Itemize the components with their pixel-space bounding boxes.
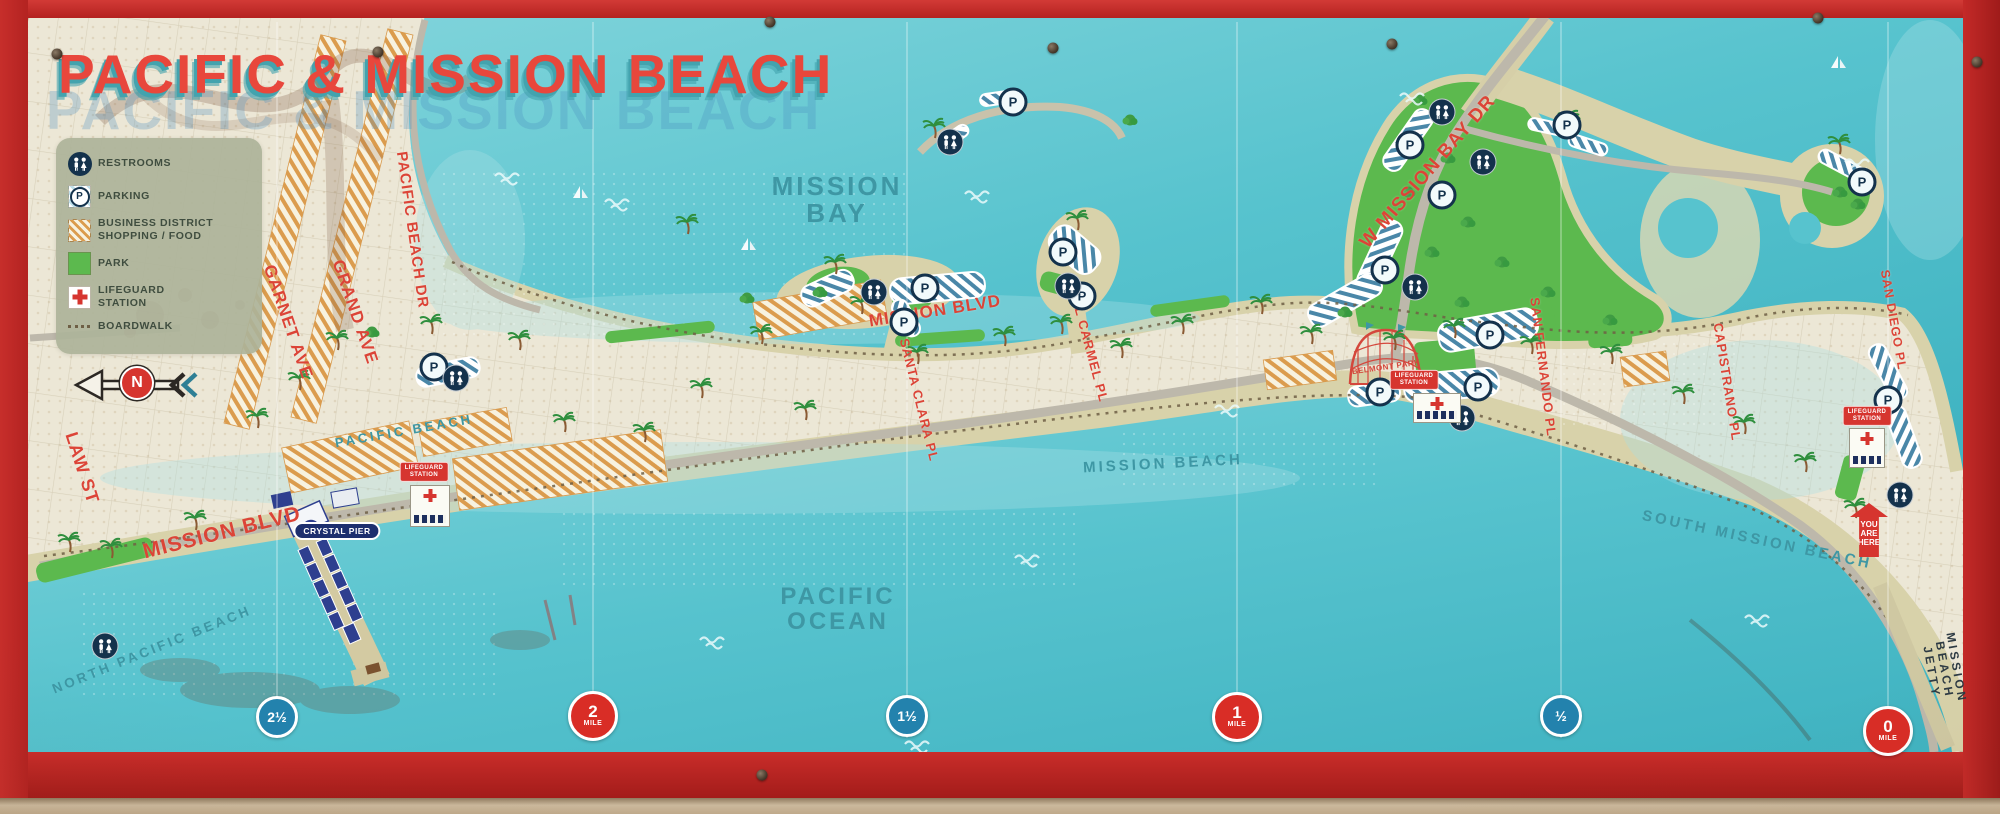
restrooms-icon [1429,99,1456,126]
parking-icon: P [911,274,940,303]
mile-marker: 2½ [256,696,298,738]
bolt-icon [1972,57,1983,68]
boardwalk-icon [68,325,98,328]
legend-item-label: LIFEGUARD STATION [98,284,165,310]
station-doors [1853,456,1881,464]
parking-icon: P [1396,131,1425,160]
lifeguard-station-building [1849,428,1885,468]
street-label: PACIFIC BEACH DR [393,151,430,310]
mile-marker-unit: MILE [1228,721,1247,729]
restrooms-icon [1402,274,1429,301]
parking-icon: P [1848,168,1877,197]
parking-icon: P [999,88,1028,117]
compass-north-label: N [120,366,154,400]
you-are-here-marker: YOU ARE HERE [1850,503,1888,557]
legend-item-label: BUSINESS DISTRICT SHOPPING / FOOD [98,217,213,243]
restrooms-icon [443,365,470,392]
legend-item-label: BOARDWALK [98,320,173,333]
parking-icon: P [1371,256,1400,285]
bolt-icon [765,17,776,28]
mile-marker-number: 1 [1232,704,1241,721]
parking-icon: P [1553,111,1582,140]
bolt-icon [373,47,384,58]
parking-icon: P [1049,238,1078,267]
street-label: SAN DIEGO PL [1878,269,1908,371]
restrooms-icon [1470,149,1497,176]
red-cross-icon [1861,432,1874,445]
mile-marker-unit: MILE [1879,735,1898,743]
legend-item: BOARDWALK [68,320,250,333]
legend-item: LIFEGUARD STATION [68,284,250,310]
street-label: GARNET AVE [260,263,316,382]
restrooms-icon [92,633,119,660]
street-label: SAN FERNANDO PL [1528,297,1558,438]
restrooms-icon [937,129,964,156]
bolt-icon [52,49,63,60]
lifeguard-station-building [1413,393,1461,423]
street-label: EL CARMEL PL [1070,296,1111,403]
mile-marker-number: 2 [588,703,597,720]
park-icon [68,252,98,275]
restrooms-icon [1055,273,1082,300]
mile-marker-label: ½ [1555,708,1567,724]
mile-marker: 2MILE [568,691,618,741]
legend-item: BUSINESS DISTRICT SHOPPING / FOOD [68,217,250,243]
business-district-icon [68,219,98,242]
parking-icon: P [1464,373,1493,402]
mile-marker-label: 1½ [897,708,916,724]
place-label: MISSION BEACH [1083,452,1243,476]
bolt-icon [1813,13,1824,24]
mile-marker: 1½ [886,695,928,737]
place-label: MISSION BEACH JETTY [1919,631,1968,708]
beach-map-sign: PACIFIC & MISSION BEACH PACIFIC & MISSIO… [0,0,2000,814]
mile-marker-number: 0 [1883,718,1892,735]
parking-icon: P [68,185,98,208]
lifeguard-station-badge: LIFEGUARD STATION [1390,370,1439,390]
place-label: PACIFIC BEACH [334,412,474,450]
legend: RESTROOMSPPARKINGBUSINESS DISTRICT SHOPP… [56,138,262,354]
street-label: CAPISTRANO PL [1711,322,1743,442]
mile-marker: 1MILE [1212,692,1262,742]
lifeguard-station-badge: LIFEGUARD STATION [400,462,449,482]
parking-icon: P [1428,181,1457,210]
mile-marker: 0MILE [1863,706,1913,756]
legend-item: PPARKING [68,185,250,208]
place-label: SOUTH MISSION BEACH [1641,508,1874,572]
lifeguard-station-badge: LIFEGUARD STATION [1843,406,1892,426]
mile-marker-unit: MILE [584,720,603,728]
lifeguard-station-building [410,485,450,527]
bolt-icon [757,770,768,781]
restrooms-icon [68,152,98,176]
legend-item: RESTROOMS [68,152,250,176]
red-cross-icon [424,489,437,502]
legend-item: PARK [68,252,250,275]
bolt-icon [1048,43,1059,54]
page-title: PACIFIC & MISSION BEACH [58,42,833,106]
place-label: PACIFIC OCEAN [780,585,895,635]
restrooms-icon [861,279,888,306]
restrooms-icon [1887,482,1914,509]
place-label: MISSION BAY [772,173,903,227]
station-doors [414,515,446,523]
crystal-pier-badge: CRYSTAL PIER [293,522,380,540]
legend-item-label: RESTROOMS [98,157,171,170]
street-label: LAW ST [62,430,103,506]
bolt-icon [1387,39,1398,50]
place-label: NORTH PACIFIC BEACH [50,604,253,697]
legend-item-label: PARK [98,257,129,270]
parking-icon: P [890,308,919,337]
legend-item-label: PARKING [98,190,150,203]
street-label: MISSION BLVD [141,503,304,563]
parking-icon: P [1476,321,1505,350]
mile-marker: ½ [1540,695,1582,737]
station-doors [1417,411,1457,419]
street-label: GRAND AVE [329,258,381,367]
mile-marker-label: 2½ [267,709,286,725]
street-label: SANTA CLARA PL [897,337,941,463]
red-cross-icon [1431,397,1444,410]
north-compass: N [72,362,206,412]
lifeguard-icon [68,286,98,309]
